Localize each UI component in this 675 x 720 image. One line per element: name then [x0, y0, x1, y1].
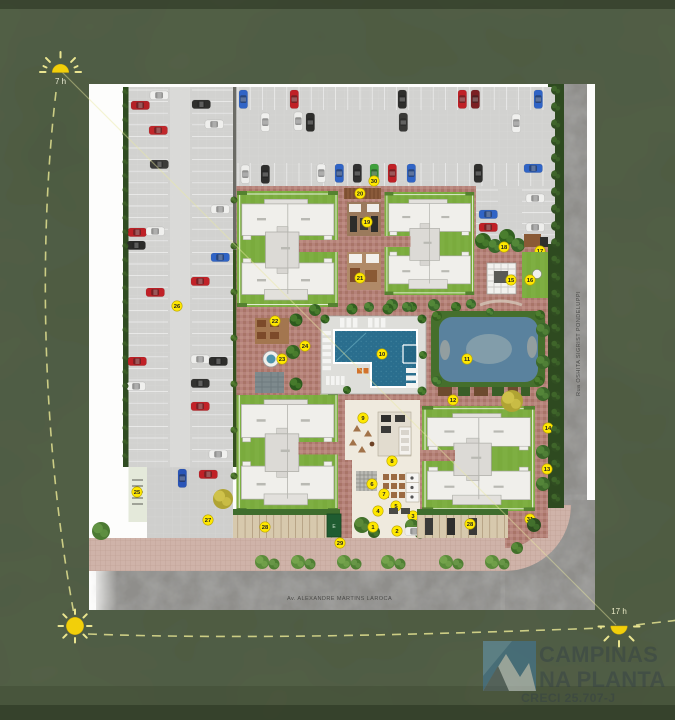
svg-text:28: 28 [262, 525, 269, 531]
svg-text:11: 11 [464, 357, 471, 363]
svg-text:13: 13 [544, 467, 551, 473]
svg-text:Rua OSHITA SIGRIST PONDELUPPI: Rua OSHITA SIGRIST PONDELUPPI [576, 291, 582, 396]
svg-text:20: 20 [357, 192, 363, 198]
svg-text:NA PLANTA: NA PLANTA [539, 667, 665, 692]
svg-text:28: 28 [467, 522, 474, 528]
svg-text:2: 2 [395, 529, 398, 535]
svg-text:24: 24 [302, 344, 309, 350]
svg-text:29: 29 [337, 541, 344, 547]
svg-text:7: 7 [382, 492, 385, 498]
svg-text:25: 25 [134, 490, 141, 496]
svg-text:18: 18 [501, 245, 508, 251]
svg-text:21: 21 [357, 276, 364, 282]
svg-text:15: 15 [508, 278, 515, 284]
svg-text:10: 10 [379, 352, 385, 358]
svg-text:17 h: 17 h [611, 607, 627, 616]
svg-text:CAMPINAS: CAMPINAS [539, 642, 658, 667]
svg-text:19: 19 [364, 220, 371, 226]
svg-text:14: 14 [545, 426, 552, 432]
svg-text:16: 16 [527, 278, 534, 284]
svg-text:26: 26 [174, 304, 181, 310]
svg-text:22: 22 [272, 319, 278, 325]
svg-text:27: 27 [205, 518, 211, 524]
svg-text:12: 12 [450, 398, 456, 404]
svg-text:30: 30 [371, 179, 377, 185]
svg-text:23: 23 [279, 357, 286, 363]
svg-text:CRECI 25.707-J: CRECI 25.707-J [521, 691, 615, 705]
svg-text:Av. ALEXANDRE MARTINS LAROCA: Av. ALEXANDRE MARTINS LAROCA [287, 596, 392, 602]
svg-text:7 h: 7 h [55, 77, 66, 86]
